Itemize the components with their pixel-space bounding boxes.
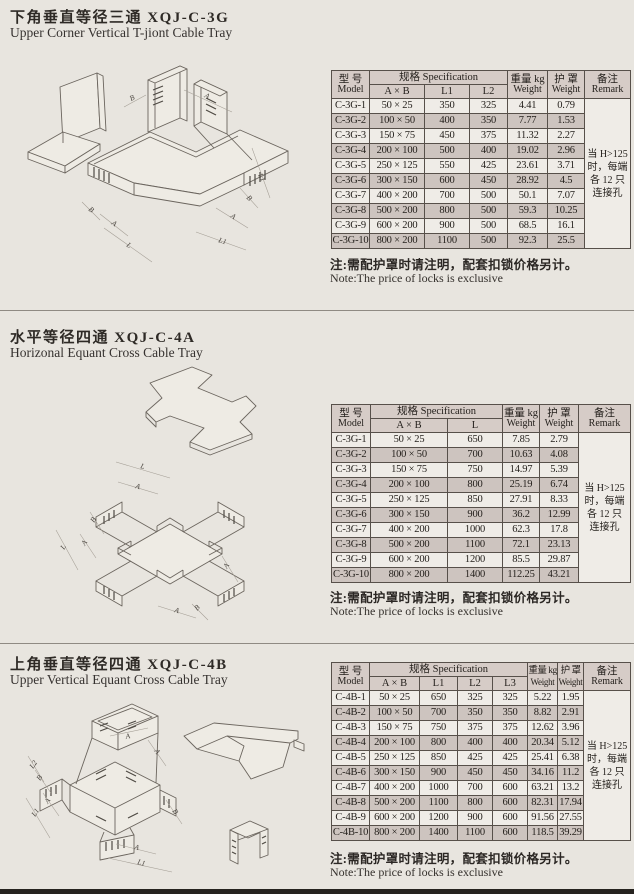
table-cell: C-3G-2	[332, 114, 370, 129]
table-cell: C-3G-3	[332, 129, 370, 144]
table-cell: 92.3	[508, 234, 548, 249]
table-cell: 2.96	[548, 144, 585, 159]
table-cell: C-3G-5	[332, 493, 371, 508]
table-cell: 700	[420, 706, 458, 721]
table-cell: 350	[493, 706, 528, 721]
table-cell: 650	[420, 691, 458, 706]
table-cell: 450	[425, 129, 470, 144]
table-cell: 5.22	[528, 691, 558, 706]
table-cell: 7.77	[508, 114, 548, 129]
drawing-shape	[294, 740, 304, 751]
table-cell: 850	[420, 751, 458, 766]
technical-drawing-horizontal-cross: L A B A L A A B	[0, 358, 330, 643]
table-cell: 5.12	[558, 736, 584, 751]
table-cell: 400	[425, 114, 470, 129]
table-cell: 34.16	[528, 766, 558, 781]
table-cell: 150 × 75	[370, 129, 425, 144]
table-cell: C-3G-1	[332, 99, 370, 114]
table-cell: 900	[458, 811, 493, 826]
table-cell: 11.32	[508, 129, 548, 144]
table-cell: C-3G-1	[332, 433, 371, 448]
table-cell: 25.5	[548, 234, 585, 249]
table-cell: 250 × 125	[371, 493, 448, 508]
table-cell: 13.2	[558, 781, 584, 796]
table-cell: 11.2	[558, 766, 584, 781]
catalog-page: 下角垂直等径三通 XQJ-C-3G Upper Corner Vertical …	[0, 0, 634, 894]
col-header-spec: 规格 Specification	[370, 71, 508, 85]
col-header-axb: A × B	[370, 85, 425, 99]
table-cell: 250 × 125	[370, 159, 425, 174]
table-cell: 375	[470, 129, 508, 144]
table-cell: C-3G-6	[332, 508, 371, 523]
spec-table-horizontal-cross: 型 号Model 规格 Specification 重量 kgWeight 护 …	[331, 404, 631, 583]
table-cell: 50.1	[508, 189, 548, 204]
table-cell: 4.08	[540, 448, 579, 463]
table-cell: C-3G-7	[332, 189, 370, 204]
col-header-weight: 重量 kgWeight	[528, 663, 558, 691]
col-header-axb: A × B	[370, 677, 420, 691]
table-cell: 600	[493, 826, 528, 841]
table-cell: 350	[470, 114, 508, 129]
table-cell: C-3G-10	[332, 234, 370, 249]
table-cell: 450	[470, 174, 508, 189]
table-cell: 3.71	[548, 159, 585, 174]
section1-title-en: Upper Corner Vertical T-jiont Cable Tray	[10, 25, 232, 41]
table-cell: 50 × 25	[370, 691, 420, 706]
table-cell: 1100	[458, 826, 493, 841]
table-cell: 10.25	[548, 204, 585, 219]
table-cell: 325	[458, 691, 493, 706]
col-header-model: 型 号Model	[332, 405, 371, 433]
table-cell: 1100	[420, 796, 458, 811]
table-cell: 425	[470, 159, 508, 174]
table-cell: 325	[470, 99, 508, 114]
table-cell: 0.79	[548, 99, 585, 114]
table-cell: 118.5	[528, 826, 558, 841]
dim-label: L2	[27, 758, 40, 771]
dim-label: L	[58, 543, 68, 552]
section3-title-en: Upper Vertical Equant Cross Cable Tray	[10, 672, 228, 688]
table-cell: 700	[458, 781, 493, 796]
table-cell: C-3G-2	[332, 448, 371, 463]
table-cell: 550	[425, 159, 470, 174]
col-header-cover: 护 罩Weight	[558, 663, 584, 691]
table-cell: C-4B-5	[332, 751, 370, 766]
table-cell: 850	[448, 493, 503, 508]
table-cell: C-3G-9	[332, 553, 371, 568]
table-cell: 600	[493, 781, 528, 796]
table-cell: 8.33	[540, 493, 579, 508]
section3-title-zh: 上角垂直等径四通 XQJ-C-4B	[10, 653, 228, 674]
table-cell: 20.34	[528, 736, 558, 751]
table-cell: 7.85	[503, 433, 540, 448]
dim-label: A	[133, 481, 141, 491]
dim-label: B	[192, 603, 202, 613]
table-cell: C-3G-4	[332, 478, 371, 493]
col-header-axb: A × B	[371, 419, 448, 433]
table-cell: 1.53	[548, 114, 585, 129]
dim-label: B	[87, 205, 97, 215]
table-cell: 150 × 75	[370, 721, 420, 736]
table-cell: C-3G-4	[332, 144, 370, 159]
table-cell: 500	[470, 234, 508, 249]
technical-drawing-vertical-cross: A A L2 B A L1 B A L1	[0, 690, 330, 890]
table-cell: 100 × 50	[371, 448, 448, 463]
table-cell: C-3G-8	[332, 204, 370, 219]
table-cell: 1000	[448, 523, 503, 538]
table-cell: 50 × 25	[371, 433, 448, 448]
remark-cell: 当 H>125 时，每端 各 12 只 连接孔	[579, 433, 631, 583]
col-header-remark: 备注Remark	[585, 71, 631, 99]
table-cell: 1200	[448, 553, 503, 568]
table-cell: 500	[470, 219, 508, 234]
col-header-remark: 备注Remark	[579, 405, 631, 433]
table-cell: 85.5	[503, 553, 540, 568]
table-cell: 700	[425, 189, 470, 204]
table-cell: C-4B-10	[332, 826, 370, 841]
section2-title-zh: 水平等径四通 XQJ-C-4A	[10, 326, 195, 347]
table-cell: 600 × 200	[370, 219, 425, 234]
table-cell: 350	[425, 99, 470, 114]
drawing-shape	[146, 367, 256, 450]
col-header-l2: L2	[470, 85, 508, 99]
dim-label: B	[128, 93, 136, 103]
table-cell: 800	[425, 204, 470, 219]
table-cell: 500	[425, 144, 470, 159]
table-cell: 112.25	[503, 568, 540, 583]
table-cell: 2.91	[558, 706, 584, 721]
drawing-shape	[218, 502, 244, 527]
section1-note-en: Note:The price of locks is exclusive	[330, 271, 503, 286]
table-cell: 1100	[448, 538, 503, 553]
spec-table-t-joint: 型 号Model 规格 Specification 重量 kgWeight 护 …	[331, 70, 631, 249]
col-header-model: 型 号Model	[332, 71, 370, 99]
table-cell: 1100	[425, 234, 470, 249]
col-header-l1: L1	[420, 677, 458, 691]
table-cell: 150 × 75	[371, 463, 448, 478]
drawing-shape	[218, 581, 244, 606]
table-cell: 6.74	[540, 478, 579, 493]
table-cell: 68.5	[508, 219, 548, 234]
table-cell: C-4B-8	[332, 796, 370, 811]
table-cell: 600 × 200	[370, 811, 420, 826]
section-divider	[0, 643, 634, 644]
dim-label: L1	[29, 806, 41, 818]
table-cell: 425	[493, 751, 528, 766]
dim-label: A	[109, 218, 119, 229]
table-cell: 250 × 125	[370, 751, 420, 766]
table-cell: 800	[420, 736, 458, 751]
table-cell: 10.63	[503, 448, 540, 463]
col-header-cover: 护 罩Weight	[540, 405, 579, 433]
table-cell: C-3G-5	[332, 159, 370, 174]
table-cell: C-4B-7	[332, 781, 370, 796]
table-cell: 100 × 50	[370, 706, 420, 721]
table-cell: 12.99	[540, 508, 579, 523]
table-cell: 600	[493, 811, 528, 826]
table-cell: 23.13	[540, 538, 579, 553]
table-cell: 12.62	[528, 721, 558, 736]
table-cell: 25.19	[503, 478, 540, 493]
table-cell: 27.55	[558, 811, 584, 826]
dim-label: L	[138, 461, 145, 471]
dim-label: A	[172, 605, 180, 615]
table-cell: 1000	[420, 781, 458, 796]
table-cell: 1400	[420, 826, 458, 841]
table-cell: 43.21	[540, 568, 579, 583]
table-cell: C-4B-2	[332, 706, 370, 721]
table-cell: 6.38	[558, 751, 584, 766]
col-header-l: L	[448, 419, 503, 433]
table-cell: 700	[448, 448, 503, 463]
table-cell: C-4B-3	[332, 721, 370, 736]
table-cell: 2.79	[540, 433, 579, 448]
table-cell: 4.41	[508, 99, 548, 114]
table-cell: 17.94	[558, 796, 584, 811]
table-cell: 800 × 200	[370, 826, 420, 841]
col-header-weight: 重量 kgWeight	[508, 71, 548, 99]
table-cell: 300 × 150	[371, 508, 448, 523]
table-cell: 375	[458, 721, 493, 736]
table-cell: C-3G-6	[332, 174, 370, 189]
col-header-spec: 规格 Specification	[371, 405, 503, 419]
table-cell: 400	[470, 144, 508, 159]
table-row: C-3G-150 × 256507.852.79当 H>125 时，每端 各 1…	[332, 433, 631, 448]
table-cell: 900	[420, 766, 458, 781]
table-cell: 400	[458, 736, 493, 751]
col-header-model: 型 号Model	[332, 663, 370, 691]
table-row: C-4B-150 × 256503253255.221.95当 H>125 时，…	[332, 691, 631, 706]
col-header-l1: L1	[425, 85, 470, 99]
table-cell: 750	[448, 463, 503, 478]
spec-table-vertical-cross: 型 号Model 规格 Specification 重量 kgWeight 护 …	[331, 662, 631, 841]
table-cell: 100 × 50	[370, 114, 425, 129]
table-cell: 23.61	[508, 159, 548, 174]
table-cell: 900	[448, 508, 503, 523]
table-cell: 29.87	[540, 553, 579, 568]
table-cell: 50 × 25	[370, 99, 425, 114]
table-cell: 500	[470, 189, 508, 204]
table-cell: 59.3	[508, 204, 548, 219]
table-cell: 63.21	[528, 781, 558, 796]
col-header-l2: L2	[458, 677, 493, 691]
table-cell: 650	[448, 433, 503, 448]
table-cell: 500	[470, 204, 508, 219]
table-cell: 325	[493, 691, 528, 706]
table-cell: 500 × 200	[371, 538, 448, 553]
section1-title-zh: 下角垂直等径三通 XQJ-C-3G	[10, 6, 229, 27]
table-cell: 375	[493, 721, 528, 736]
remark-cell: 当 H>125 时，每端 各 12 只 连接孔	[584, 691, 631, 841]
drawing-shape	[180, 66, 187, 121]
col-header-l3: L3	[493, 677, 528, 691]
table-cell: C-3G-3	[332, 463, 371, 478]
section2-note-en: Note:The price of locks is exclusive	[330, 604, 503, 619]
table-cell: 200 × 100	[370, 736, 420, 751]
table-cell: 800 × 200	[370, 234, 425, 249]
table-cell: 91.56	[528, 811, 558, 826]
table-cell: 500 × 200	[370, 204, 425, 219]
table-cell: 1200	[420, 811, 458, 826]
page-edge-bar	[0, 889, 634, 894]
col-header-remark: 备注Remark	[584, 663, 631, 691]
table-cell: C-4B-6	[332, 766, 370, 781]
table-cell: 2.27	[548, 129, 585, 144]
table-cell: 5.39	[540, 463, 579, 478]
table-cell: 600	[425, 174, 470, 189]
table-cell: 36.2	[503, 508, 540, 523]
table-cell: 3.96	[558, 721, 584, 736]
section3-note-en: Note:The price of locks is exclusive	[330, 865, 503, 880]
technical-drawing-t-joint: B A L1 B A B A L L1	[0, 60, 330, 300]
table-cell: 400	[493, 736, 528, 751]
table-cell: 400 × 200	[371, 523, 448, 538]
table-cell: 300 × 150	[370, 766, 420, 781]
table-cell: C-3G-7	[332, 523, 371, 538]
table-cell: 82.31	[528, 796, 558, 811]
table-cell: 8.82	[528, 706, 558, 721]
drawing-shape	[118, 524, 222, 584]
table-cell: C-4B-9	[332, 811, 370, 826]
table-cell: 300 × 150	[370, 174, 425, 189]
table-cell: 900	[425, 219, 470, 234]
table-cell: 14.97	[503, 463, 540, 478]
table-cell: C-4B-1	[332, 691, 370, 706]
remark-cell: 当 H>125 时，每端 各 12 只 连接孔	[585, 99, 631, 249]
table-cell: 72.1	[503, 538, 540, 553]
table-cell: 4.5	[548, 174, 585, 189]
table-cell: 400 × 200	[370, 189, 425, 204]
table-cell: 16.1	[548, 219, 585, 234]
table-cell: C-3G-10	[332, 568, 371, 583]
table-cell: 800 × 200	[371, 568, 448, 583]
table-cell: 450	[493, 766, 528, 781]
col-header-spec: 规格 Specification	[370, 663, 528, 677]
col-header-cover: 护 罩Weight	[548, 71, 585, 99]
table-cell: C-4B-4	[332, 736, 370, 751]
table-cell: 1400	[448, 568, 503, 583]
table-cell: C-3G-8	[332, 538, 371, 553]
table-cell: 27.91	[503, 493, 540, 508]
table-cell: 25.41	[528, 751, 558, 766]
dim-label: A	[228, 211, 238, 222]
table-cell: 19.02	[508, 144, 548, 159]
dim-label: L1	[216, 235, 227, 246]
table-cell: 28.92	[508, 174, 548, 189]
table-cell: 350	[458, 706, 493, 721]
table-cell: 600 × 200	[371, 553, 448, 568]
dim-label: L	[124, 240, 133, 250]
table-cell: 800	[458, 796, 493, 811]
table-cell: 425	[458, 751, 493, 766]
table-cell: 400 × 200	[370, 781, 420, 796]
table-cell: 200 × 100	[371, 478, 448, 493]
drawing-shape	[184, 723, 298, 779]
section-divider	[0, 310, 634, 311]
table-cell: 200 × 100	[370, 144, 425, 159]
table-cell: 7.07	[548, 189, 585, 204]
table-cell: 450	[458, 766, 493, 781]
table-cell: 17.8	[540, 523, 579, 538]
table-cell: 1.95	[558, 691, 584, 706]
table-cell: C-3G-9	[332, 219, 370, 234]
table-cell: 500 × 200	[370, 796, 420, 811]
col-header-weight: 重量 kgWeight	[503, 405, 540, 433]
table-cell: 800	[448, 478, 503, 493]
table-cell: 750	[420, 721, 458, 736]
table-cell: 600	[493, 796, 528, 811]
table-cell: 39.29	[558, 826, 584, 841]
table-row: C-3G-150 × 253503254.410.79当 H>125 时，每端 …	[332, 99, 631, 114]
table-cell: 62.3	[503, 523, 540, 538]
